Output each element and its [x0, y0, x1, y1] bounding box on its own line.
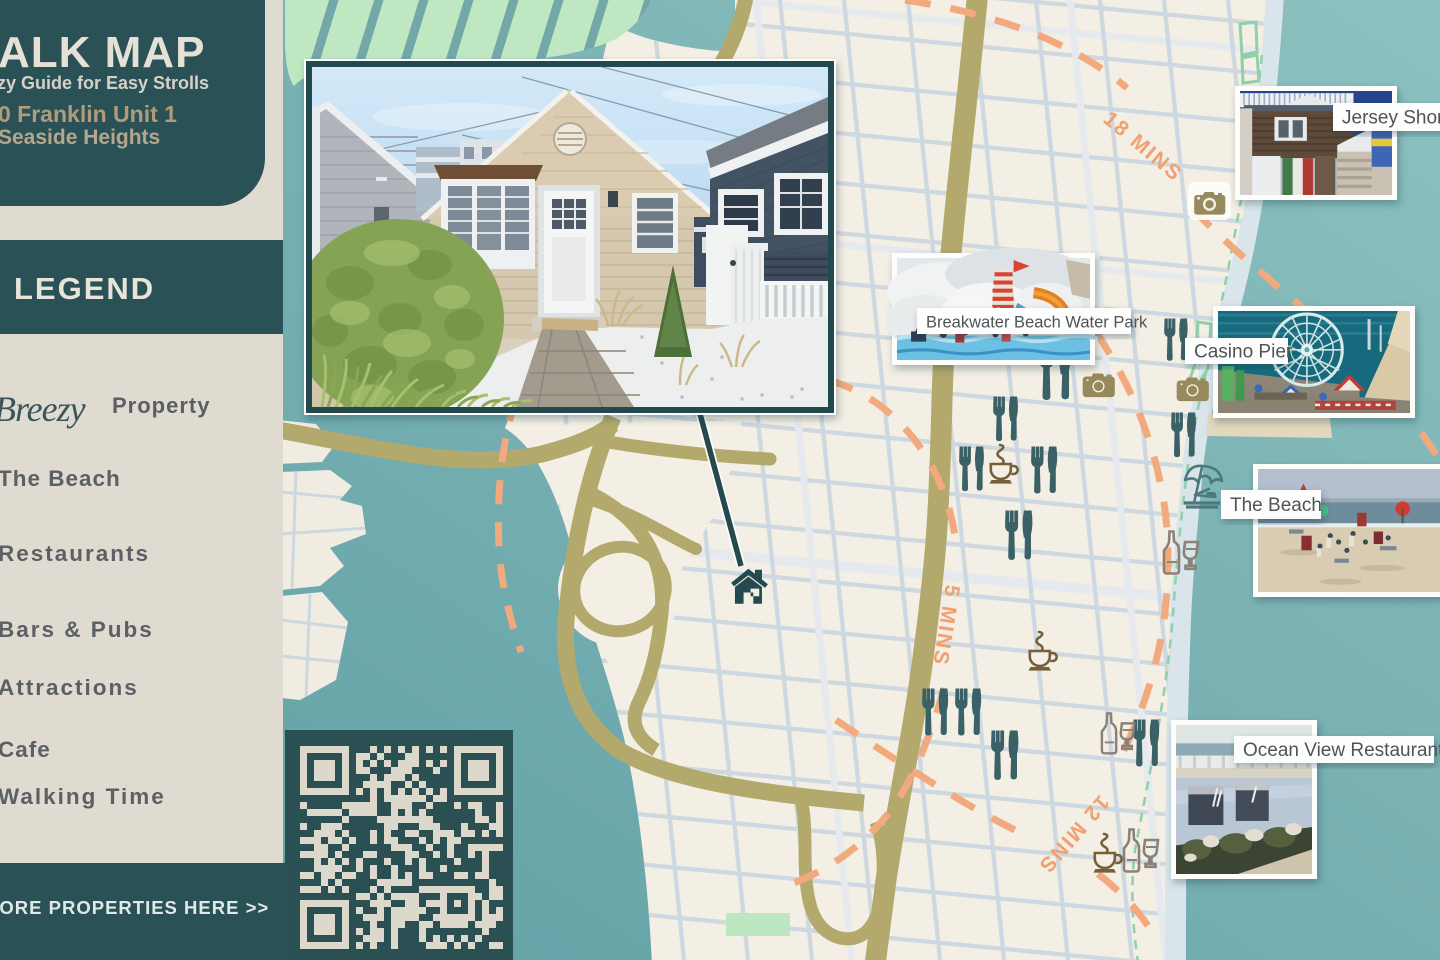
- svg-text:The Beach: The Beach: [1230, 495, 1322, 516]
- svg-text:Ocean View Restaurant: Ocean View Restaurant: [1243, 740, 1440, 761]
- svg-text:Casino Pier: Casino Pier: [1194, 342, 1293, 363]
- svg-text:Breakwater Beach Water Park: Breakwater Beach Water Park: [926, 314, 1148, 332]
- svg-text:Jersey Shore: Jersey Shore: [1342, 108, 1440, 129]
